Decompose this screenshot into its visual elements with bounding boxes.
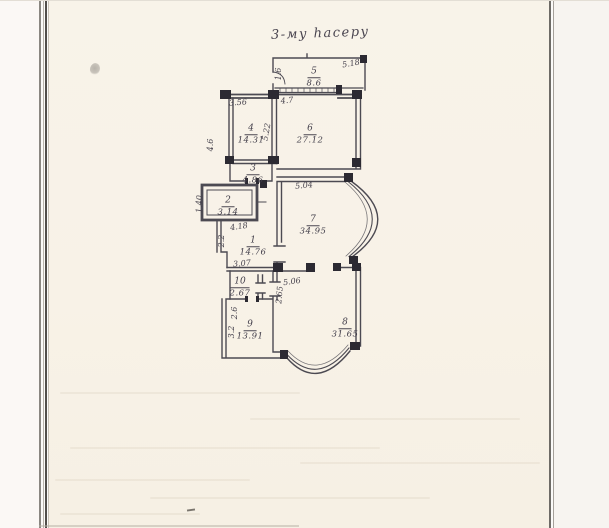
room-area: 8.6 <box>306 78 321 88</box>
dimension-label: 1.6 <box>275 68 283 81</box>
room-area: 34.95 <box>300 226 327 236</box>
room-area: 14.76 <box>240 247 267 257</box>
room-number: 3 <box>246 164 260 175</box>
room-label-5: 58.6 <box>306 60 321 88</box>
room-number: 2 <box>221 196 235 207</box>
room-area: 4.86 <box>243 175 264 185</box>
room-number: 8 <box>338 318 352 329</box>
dimension-label: 2.6 <box>231 307 239 320</box>
room-area: 2.67 <box>230 288 251 298</box>
room-number: 10 <box>230 277 249 288</box>
dimension-label: 2.2 <box>218 235 226 248</box>
dimension-label: 3.56 <box>229 98 247 107</box>
dimension-label: 3.2 <box>228 326 236 339</box>
dimension-label: 2.65 <box>275 286 285 304</box>
scanned-floor-plan-page: 3-му hacepy <box>0 0 609 528</box>
dimension-label: 4.6 <box>207 139 215 152</box>
room-number: 9 <box>243 320 257 331</box>
room-area: 13.91 <box>237 331 264 341</box>
room-label-4: 414.31 <box>238 117 265 145</box>
room-label-10: 102.67 <box>230 270 251 298</box>
room-number: 5 <box>307 67 321 78</box>
room-label-2: 23.14 <box>218 189 239 217</box>
floor-plan-drawing <box>0 0 609 528</box>
dimension-label: 3.07 <box>233 259 251 269</box>
room-number: 1 <box>246 236 260 247</box>
room-label-7: 734.95 <box>300 208 327 236</box>
room-number: 7 <box>306 215 320 226</box>
room-label-8: 831.65 <box>332 311 359 339</box>
room-label-3: 34.86 <box>243 157 264 185</box>
dimension-label: 4.7 <box>280 96 294 105</box>
room-label-1: 114.76 <box>240 229 267 257</box>
room-number: 6 <box>303 124 317 135</box>
room-label-6: 627.12 <box>297 117 324 145</box>
room-area: 31.65 <box>332 329 359 339</box>
room-label-9: 913.91 <box>237 313 264 341</box>
room-area: 27.12 <box>297 135 324 145</box>
room-number: 4 <box>244 124 258 135</box>
dimension-label: 1.40 <box>196 195 204 213</box>
room-area: 3.14 <box>218 207 239 217</box>
